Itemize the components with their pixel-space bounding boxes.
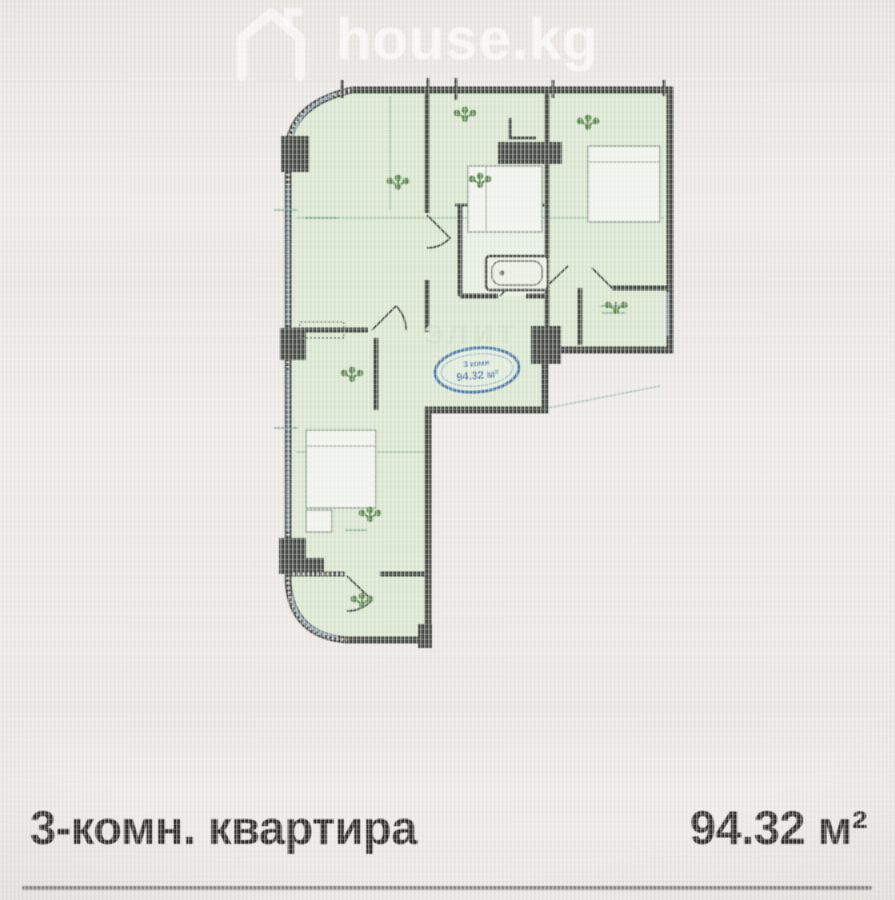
floor-plan: элит 3 комн 94.32 м²: [0, 0, 895, 900]
listing-photo: { "watermark": { "brand": "house.kg" }, …: [0, 0, 895, 900]
bed-right-bedroom: [588, 146, 660, 222]
plan-watermark-text: элит: [424, 311, 518, 352]
photo-bottom-edge: [22, 886, 872, 890]
watermark-brand: house.kg: [336, 0, 599, 80]
house-icon: [226, 0, 312, 82]
site-watermark: house.kg: [226, 0, 599, 82]
area-label: 94.32 м²: [690, 800, 867, 855]
room-count-label: 3-комн. квартира: [30, 800, 417, 855]
bathtub-icon: [486, 256, 548, 290]
caption-bar: 3-комн. квартира 94.32 м²: [30, 800, 867, 855]
